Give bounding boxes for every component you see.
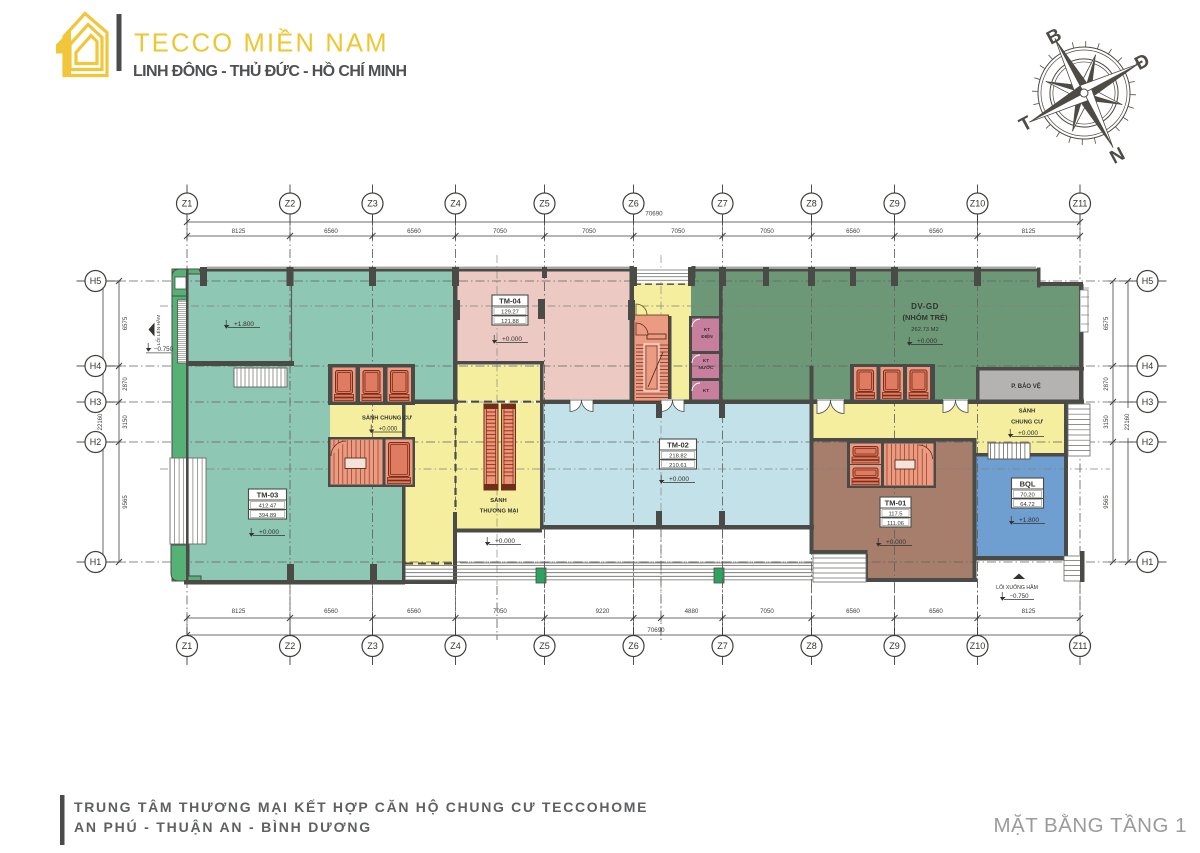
svg-text:7050: 7050: [671, 228, 685, 235]
svg-text:MẶT BẰNG TẦNG 1: MẶT BẰNG TẦNG 1: [993, 813, 1187, 837]
svg-text:Z8: Z8: [806, 641, 817, 651]
svg-text:Z6: Z6: [628, 199, 639, 209]
svg-text:70.20: 70.20: [1020, 493, 1035, 499]
svg-text:6560: 6560: [407, 608, 421, 615]
svg-text:Z7: Z7: [717, 199, 728, 209]
svg-text:CHUNG CƯ: CHUNG CƯ: [1011, 420, 1043, 426]
svg-text:394.89: 394.89: [259, 513, 277, 519]
svg-text:4880: 4880: [685, 608, 699, 615]
svg-text:Z1: Z1: [182, 199, 193, 209]
svg-text:(NHÓM TRẺ): (NHÓM TRẺ): [903, 313, 948, 322]
svg-text:7050: 7050: [493, 228, 507, 235]
svg-text:+1.800: +1.800: [1019, 517, 1039, 524]
svg-text:Z5: Z5: [539, 199, 550, 209]
svg-text:H4: H4: [1142, 361, 1154, 371]
svg-text:Z7: Z7: [717, 641, 728, 651]
svg-text:Z11: Z11: [1073, 199, 1088, 209]
svg-text:7050: 7050: [582, 228, 596, 235]
svg-text:6560: 6560: [324, 228, 338, 235]
svg-text:+0.000: +0.000: [502, 336, 522, 343]
svg-text:THƯƠNG MẠI: THƯƠNG MẠI: [480, 509, 519, 515]
svg-text:7050: 7050: [493, 608, 507, 615]
svg-text:Z8: Z8: [806, 199, 817, 209]
svg-text:6560: 6560: [929, 228, 943, 235]
svg-text:Z4: Z4: [450, 641, 461, 651]
svg-text:6575: 6575: [123, 316, 129, 330]
svg-text:6560: 6560: [407, 228, 421, 235]
svg-text:9565: 9565: [123, 495, 129, 509]
svg-text:22160: 22160: [1125, 413, 1131, 430]
svg-text:+0.000: +0.000: [259, 529, 279, 536]
svg-text:H2: H2: [1142, 437, 1154, 447]
svg-text:Z10: Z10: [970, 641, 986, 651]
svg-text:129.27: 129.27: [501, 310, 519, 316]
svg-text:Z5: Z5: [539, 641, 550, 651]
svg-text:Z9: Z9: [889, 199, 900, 209]
svg-text:6560: 6560: [324, 608, 338, 615]
svg-text:8125: 8125: [232, 608, 246, 615]
svg-text:Z2: Z2: [285, 199, 296, 209]
svg-text:KT: KT: [704, 327, 710, 333]
svg-text:H1: H1: [90, 557, 102, 567]
svg-text:−0.750: −0.750: [1009, 593, 1029, 600]
svg-text:412.47: 412.47: [259, 504, 277, 510]
svg-text:2870: 2870: [123, 377, 129, 391]
svg-text:LỐI XUỐNG HẦM: LỐI XUỐNG HẦM: [996, 584, 1038, 591]
svg-text:SẢNH CHUNG CƯ: SẢNH CHUNG CƯ: [362, 415, 412, 422]
svg-text:H3: H3: [90, 397, 102, 407]
svg-text:7050: 7050: [760, 228, 774, 235]
svg-text:+0.000: +0.000: [886, 539, 906, 546]
svg-text:Z2: Z2: [285, 641, 296, 651]
svg-text:9565: 9565: [1104, 495, 1110, 509]
svg-text:22160: 22160: [98, 413, 104, 430]
svg-text:8125: 8125: [1022, 608, 1036, 615]
svg-text:117.5: 117.5: [888, 512, 902, 518]
svg-text:6560: 6560: [846, 608, 860, 615]
svg-text:TECCO MIỀN NAM: TECCO MIỀN NAM: [134, 29, 389, 58]
svg-text:BQL: BQL: [1020, 480, 1036, 489]
svg-text:70690: 70690: [647, 627, 665, 634]
svg-text:64.72: 64.72: [1020, 502, 1035, 508]
svg-text:Z11: Z11: [1073, 641, 1088, 651]
svg-text:TM-01: TM-01: [885, 499, 907, 508]
svg-text:Z9: Z9: [889, 641, 900, 651]
svg-text:H4: H4: [90, 361, 102, 371]
svg-text:121.88: 121.88: [501, 319, 519, 325]
svg-text:210.61: 210.61: [669, 463, 687, 469]
svg-text:H5: H5: [90, 276, 102, 286]
svg-text:9220: 9220: [596, 608, 610, 615]
svg-text:H3: H3: [1142, 397, 1154, 407]
svg-text:8125: 8125: [1022, 228, 1036, 235]
svg-text:+0.000: +0.000: [1018, 430, 1038, 437]
svg-text:AN PHÚ - THUẬN AN - BÌNH DƯƠNG: AN PHÚ - THUẬN AN - BÌNH DƯƠNG: [74, 818, 372, 835]
svg-text:DV-GD: DV-GD: [911, 302, 939, 311]
svg-text:Z1: Z1: [182, 641, 193, 651]
svg-text:+0.000: +0.000: [379, 427, 398, 433]
svg-text:6560: 6560: [846, 228, 860, 235]
svg-text:+0.000: +0.000: [669, 476, 689, 483]
svg-text:TM-04: TM-04: [499, 297, 521, 306]
svg-text:Z4: Z4: [450, 199, 461, 209]
svg-text:H1: H1: [1142, 557, 1154, 567]
svg-text:70690: 70690: [645, 211, 663, 218]
svg-text:TM-02: TM-02: [667, 441, 689, 450]
svg-text:LINH ĐÔNG - THỦ ĐỨC - HỒ CHÍ M: LINH ĐÔNG - THỦ ĐỨC - HỒ CHÍ MINH: [133, 61, 406, 80]
svg-text:Z10: Z10: [970, 199, 986, 209]
svg-text:6560: 6560: [929, 608, 943, 615]
svg-text:111.06: 111.06: [887, 521, 904, 527]
svg-text:262.73 M2: 262.73 M2: [911, 327, 938, 333]
svg-text:+1.800: +1.800: [234, 321, 254, 328]
svg-text:8125: 8125: [232, 228, 246, 235]
svg-text:+0.000: +0.000: [917, 338, 937, 345]
svg-text:+0.000: +0.000: [495, 538, 515, 545]
svg-text:3150: 3150: [123, 415, 129, 429]
svg-text:SẢNH: SẢNH: [490, 497, 506, 504]
svg-text:Z3: Z3: [367, 199, 378, 209]
svg-text:2870: 2870: [1104, 377, 1110, 391]
svg-text:6575: 6575: [1104, 316, 1110, 330]
svg-text:3150: 3150: [1104, 415, 1110, 429]
svg-text:218.82: 218.82: [669, 454, 687, 460]
svg-text:SẢNH: SẢNH: [1019, 408, 1035, 415]
svg-text:−0.750: −0.750: [154, 346, 174, 353]
svg-text:KT: KT: [703, 388, 709, 394]
svg-text:TM-03: TM-03: [257, 491, 279, 500]
svg-text:H5: H5: [1142, 276, 1154, 286]
svg-text:TRUNG TÂM THƯƠNG MẠI KẾT HỢP C: TRUNG TÂM THƯƠNG MẠI KẾT HỢP CĂN HỘ CHUN…: [74, 798, 648, 815]
svg-text:P. BẢO VỆ: P. BẢO VỆ: [1011, 382, 1041, 390]
svg-text:KT: KT: [703, 358, 709, 364]
svg-text:Z6: Z6: [628, 641, 639, 651]
svg-text:Z3: Z3: [367, 641, 378, 651]
svg-text:H2: H2: [90, 437, 102, 447]
svg-text:7050: 7050: [760, 608, 774, 615]
